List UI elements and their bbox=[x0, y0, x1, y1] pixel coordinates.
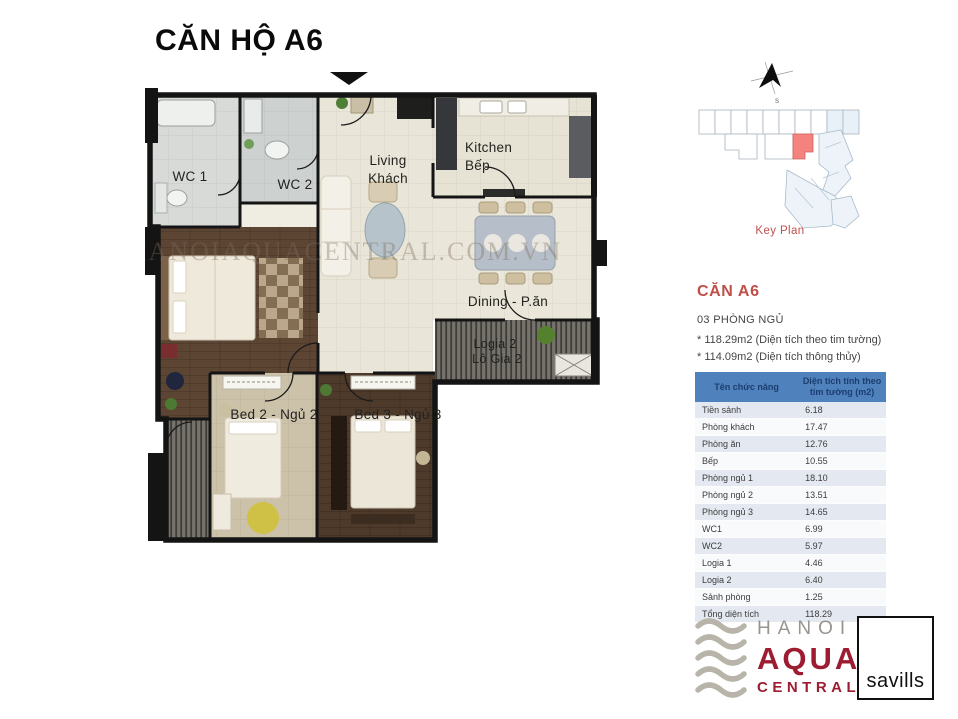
table-row: Bếp10.55 bbox=[695, 453, 886, 470]
floor-plan: HANOIAQUACENTRAL.COM.VN WC 1 WC 2 Living… bbox=[145, 88, 637, 550]
brand-central: CENTRAL bbox=[757, 679, 860, 696]
svg-text:S: S bbox=[775, 99, 779, 105]
room-label-living2: Khách bbox=[368, 171, 408, 186]
page-title: CĂN HỘ A6 bbox=[155, 24, 323, 58]
area-table: Tên chức năng Diện tích tính theo tim tư… bbox=[695, 372, 886, 623]
brochure-page: CĂN HỘ A6 bbox=[0, 0, 958, 719]
key-plan-drawing: S bbox=[695, 60, 865, 240]
table-row: Phòng ngủ 314.65 bbox=[695, 504, 886, 521]
room-label-logia2b: Lô Gia 2 bbox=[472, 352, 522, 366]
unit-row bbox=[699, 110, 859, 134]
room-label-living1: Living bbox=[369, 153, 406, 168]
unit-outline bbox=[765, 134, 793, 159]
aqua-waves-icon bbox=[694, 614, 748, 700]
room-label-wc1: WC 1 bbox=[173, 169, 208, 184]
savills-logo: savills bbox=[857, 616, 934, 700]
table-row: Phòng ngủ 118.10 bbox=[695, 470, 886, 487]
brand-aqua: AQUA bbox=[757, 641, 860, 677]
table-row: Phòng khách17.47 bbox=[695, 419, 886, 436]
room-label-kitchen1: Kitchen bbox=[465, 140, 512, 155]
highlighted-unit bbox=[793, 134, 813, 159]
table-row: Logia 26.40 bbox=[695, 572, 886, 589]
room-label-kitchen2: Bếp bbox=[465, 158, 490, 173]
room-label-bed2: Bed 2 - Ngủ 2 bbox=[230, 407, 317, 422]
table-header-area: Diện tích tính theo tim tường (m2) bbox=[798, 372, 886, 402]
developer-logo: HANOI AQUA CENTRAL bbox=[694, 614, 860, 700]
unit-outline bbox=[725, 134, 757, 159]
table-row: Phòng ăn12.76 bbox=[695, 436, 886, 453]
table-row: Sảnh phòng1.25 bbox=[695, 589, 886, 606]
room-label-wc2: WC 2 bbox=[278, 177, 313, 192]
room-label-dining: Dining - P.ăn bbox=[468, 294, 548, 309]
brand-hanoi: HANOI bbox=[757, 618, 860, 640]
key-plan: S bbox=[695, 60, 865, 240]
north-arrow-icon: S bbox=[751, 62, 793, 105]
table-row: WC16.99 bbox=[695, 521, 886, 538]
table-row: Tiền sảnh6.18 bbox=[695, 402, 886, 419]
floor-plan-drawing: HANOIAQUACENTRAL.COM.VN WC 1 WC 2 Living… bbox=[145, 88, 637, 550]
key-plan-caption: Key Plan bbox=[755, 225, 804, 237]
down-triangle-icon bbox=[330, 72, 368, 85]
watermark: HANOIAQUACENTRAL.COM.VN bbox=[145, 237, 562, 266]
table-header-name: Tên chức năng bbox=[695, 372, 798, 402]
table-row: WC25.97 bbox=[695, 538, 886, 555]
room-label-bed3: Bed 3 - Ngủ 3 bbox=[354, 407, 441, 422]
unit-bedrooms: 03 PHÒNG NGỦ bbox=[697, 314, 907, 326]
unit-info: CĂN A6 03 PHÒNG NGỦ * 118.29m2 (Diện tíc… bbox=[697, 283, 907, 366]
unit-name: CĂN A6 bbox=[697, 283, 907, 301]
table-row: Phòng ngủ 213.51 bbox=[695, 487, 886, 504]
table-row: Logia 14.46 bbox=[695, 555, 886, 572]
unit-area-line1: * 118.29m2 (Diện tích theo tim tường) bbox=[697, 332, 907, 349]
room-label-logia2a: Logia 2 bbox=[473, 337, 516, 351]
unit-area-line2: * 114.09m2 (Diện tích thông thủy) bbox=[697, 349, 907, 366]
savills-logo-text: savills bbox=[867, 670, 925, 693]
